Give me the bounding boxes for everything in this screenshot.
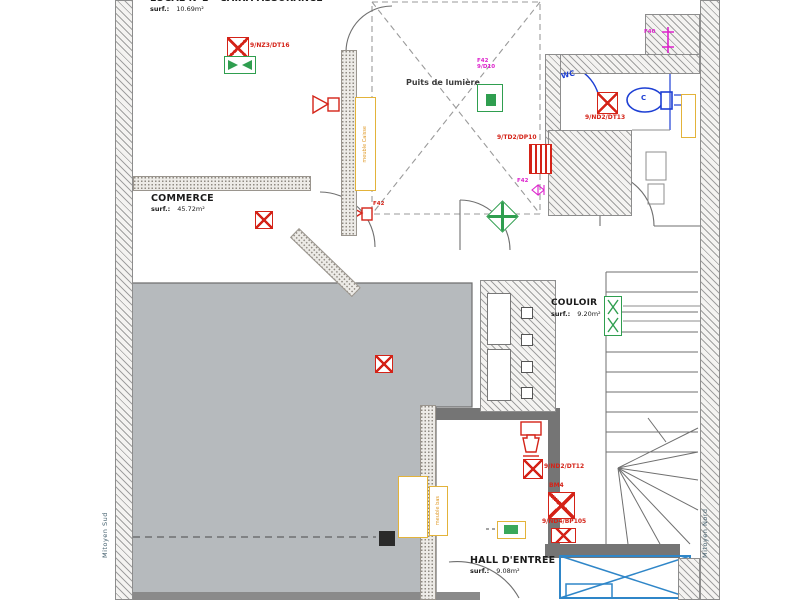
detector-box bbox=[255, 211, 273, 229]
furniture-shelf bbox=[681, 94, 696, 138]
tag-dt16: 9/NZ3/DT16 bbox=[250, 43, 290, 49]
exit-sign-box bbox=[224, 56, 256, 74]
shaft-box bbox=[522, 308, 532, 318]
commerce-floor bbox=[133, 283, 680, 600]
green-wall-fixture-glyph bbox=[605, 297, 621, 335]
wall-local-bottom bbox=[133, 176, 311, 191]
floor-box bbox=[497, 521, 526, 539]
heater-tag-box bbox=[529, 144, 552, 174]
shaft-box bbox=[522, 388, 532, 398]
room-title-hall: HALL D'ENTREE bbox=[470, 555, 555, 566]
tag-dt13: 9/ND2/DT13 bbox=[585, 115, 625, 121]
green-fixture-inner bbox=[486, 94, 496, 106]
label-f40: F40 bbox=[644, 29, 655, 35]
room-surface-local: surf.:10.69m² bbox=[150, 5, 204, 13]
furniture-counter-label: meuble Caisse bbox=[363, 126, 368, 163]
label-f42-puits: F42 9/D10 bbox=[477, 58, 495, 71]
shaft-box bbox=[522, 362, 532, 372]
floor-box-inner bbox=[504, 525, 518, 534]
furniture-low-cabinet-label: meuble bas bbox=[436, 496, 441, 525]
party-wall-label-south: Mitoyen Sud bbox=[101, 443, 109, 558]
push-button-tag-box bbox=[548, 492, 575, 519]
radiator-f40-glyph bbox=[660, 25, 676, 59]
elevator bbox=[560, 556, 690, 598]
surface-label: surf.: bbox=[151, 205, 170, 213]
label-f42-commerce: F42 bbox=[373, 202, 384, 208]
room-surface-commerce: surf.:45.72m² bbox=[151, 205, 205, 213]
surface-label: surf.: bbox=[470, 567, 489, 575]
green-wall-fixture bbox=[604, 296, 622, 336]
room-surface-couloir: surf.:9.20m² bbox=[551, 310, 601, 318]
room-title-couloir: COULOIR bbox=[551, 298, 597, 308]
shaft-duct-opening bbox=[488, 350, 510, 400]
fire-alarm-tag-box bbox=[523, 459, 543, 479]
furniture-cabinet bbox=[398, 476, 428, 538]
label-d10-line2: 9/D10 bbox=[477, 64, 495, 70]
light-well bbox=[372, 2, 540, 214]
furniture-low-cabinet: meuble bas bbox=[429, 486, 448, 536]
surface-value: 9.20m² bbox=[577, 310, 600, 318]
surface-value: 45.72m² bbox=[177, 205, 205, 213]
room-title-commerce: COMMERCE bbox=[151, 193, 214, 204]
tag-bp105: 9/ND4/BP105 bbox=[542, 519, 586, 525]
light-well-label: Puits de lumière bbox=[406, 78, 480, 87]
tag-bm4: BM4 bbox=[549, 483, 564, 489]
wall-central-block bbox=[548, 130, 632, 216]
surface-value: 10.69m² bbox=[176, 5, 204, 13]
tag-dt12: 9/ND2/DT12 bbox=[544, 464, 584, 470]
label-f42-couloir: F42 bbox=[517, 178, 528, 184]
duct-shaft bbox=[480, 280, 556, 412]
party-wall-label-north: Mitoyen Nord bbox=[701, 443, 709, 558]
room-surface-hall: surf.:9.08m² bbox=[470, 567, 520, 575]
fire-alarm-tag-box bbox=[597, 92, 618, 114]
push-button-glyph bbox=[551, 528, 576, 543]
tag-dp10: 9/TD2/DP10 bbox=[497, 135, 537, 141]
surface-label: surf.: bbox=[551, 310, 570, 318]
furniture-counter: meuble Caisse bbox=[355, 97, 376, 191]
shaft-duct-opening bbox=[488, 294, 510, 344]
room-title-local: LOCAL N°1 - CAIXA ASSURANCE bbox=[150, 0, 323, 4]
surface-label: surf.: bbox=[150, 5, 169, 13]
detector-box bbox=[375, 355, 393, 373]
wall-party-south bbox=[115, 0, 133, 600]
green-fixture-box bbox=[477, 84, 503, 112]
valve-glyph-couloir bbox=[531, 181, 545, 200]
wall-elevator-corner bbox=[678, 558, 700, 600]
surface-value: 9.08m² bbox=[496, 567, 519, 575]
floor-outlet bbox=[379, 531, 395, 546]
shaft-box bbox=[522, 335, 532, 345]
floor-plan: LOCAL N°1 - CAIXA ASSURANCE surf.:10.69m… bbox=[0, 0, 800, 600]
exit-sign-glyph bbox=[225, 57, 255, 73]
wc-bowl-letter: C bbox=[641, 94, 646, 102]
